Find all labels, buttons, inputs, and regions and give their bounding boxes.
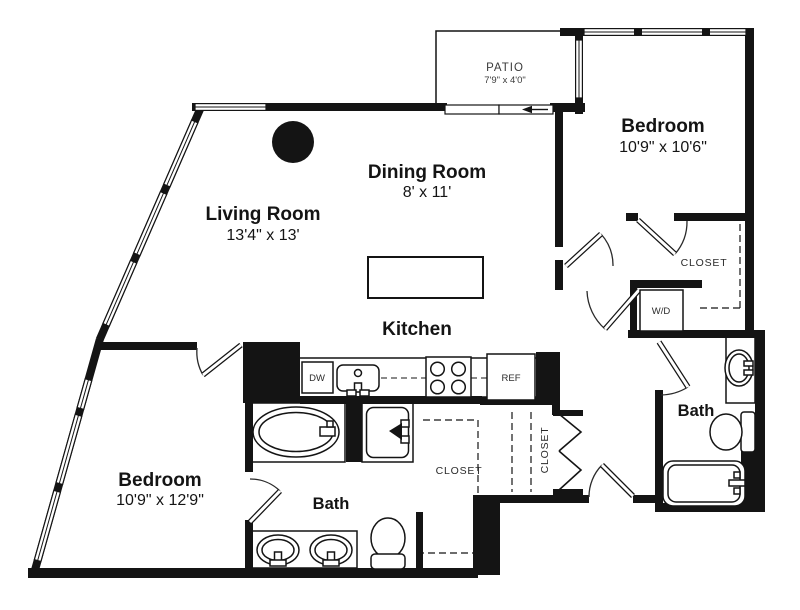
dishwasher: DW bbox=[302, 362, 333, 393]
kitchen-label: Kitchen bbox=[382, 319, 452, 340]
shower bbox=[362, 403, 413, 462]
closet-walkin-label: CLOSET bbox=[436, 465, 483, 477]
stove bbox=[426, 357, 471, 397]
dishwasher-label: DW bbox=[309, 373, 325, 384]
dining-room-label: Dining Room bbox=[368, 162, 486, 183]
diagonal-wall-lower bbox=[30, 338, 104, 575]
garden-tub bbox=[251, 403, 345, 462]
living-room-label: Living Room bbox=[205, 204, 320, 225]
door-bedroom-left bbox=[197, 345, 241, 375]
patio-label: PATIO bbox=[486, 62, 524, 74]
bath-right-label: Bath bbox=[678, 402, 715, 420]
door-hall bbox=[589, 465, 633, 497]
door-closet-upper-right bbox=[638, 220, 687, 254]
double-vanity bbox=[251, 531, 357, 568]
bedroom-right-label: Bedroom bbox=[621, 116, 704, 137]
refrigerator: REF bbox=[487, 354, 535, 400]
door-bath-right bbox=[659, 342, 688, 395]
bedroom-left-dims: 10'9" x 12'9" bbox=[116, 492, 204, 509]
diagonal-wall-upper bbox=[96, 104, 205, 341]
bifold-closet-doors bbox=[559, 414, 581, 490]
bath-right-tub bbox=[663, 461, 745, 506]
washer-dryer: W/D bbox=[640, 290, 683, 331]
door-bedroom-right bbox=[566, 234, 613, 266]
windows bbox=[195, 28, 746, 110]
column bbox=[272, 121, 314, 163]
refrigerator-label: REF bbox=[502, 373, 521, 384]
door-bath-lower bbox=[250, 479, 280, 522]
bath-lower-toilet bbox=[371, 518, 405, 569]
kitchen-island bbox=[368, 257, 483, 298]
dining-room-dims: 8' x 11' bbox=[403, 184, 452, 201]
patio-sliding-door bbox=[445, 105, 553, 114]
kitchen-sink bbox=[337, 365, 379, 396]
bedroom-right-dims: 10'9" x 10'6" bbox=[619, 139, 707, 156]
floor-plan: DW REF W/D bbox=[0, 0, 800, 610]
bath-right-sink bbox=[725, 337, 755, 403]
closet-hall-label: CLOSET bbox=[539, 427, 551, 474]
patio-dims: 7'9" x 4'0" bbox=[484, 75, 526, 86]
living-room-dims: 13'4" x 13' bbox=[226, 227, 299, 244]
bedroom-left-label: Bedroom bbox=[118, 470, 201, 491]
closet-upper-right-label: CLOSET bbox=[681, 257, 728, 269]
washer-dryer-label: W/D bbox=[652, 306, 671, 317]
floor-plan-canvas: DW REF W/D bbox=[0, 0, 800, 610]
bath-right-toilet bbox=[710, 412, 755, 452]
bath-lower-label: Bath bbox=[313, 495, 350, 513]
